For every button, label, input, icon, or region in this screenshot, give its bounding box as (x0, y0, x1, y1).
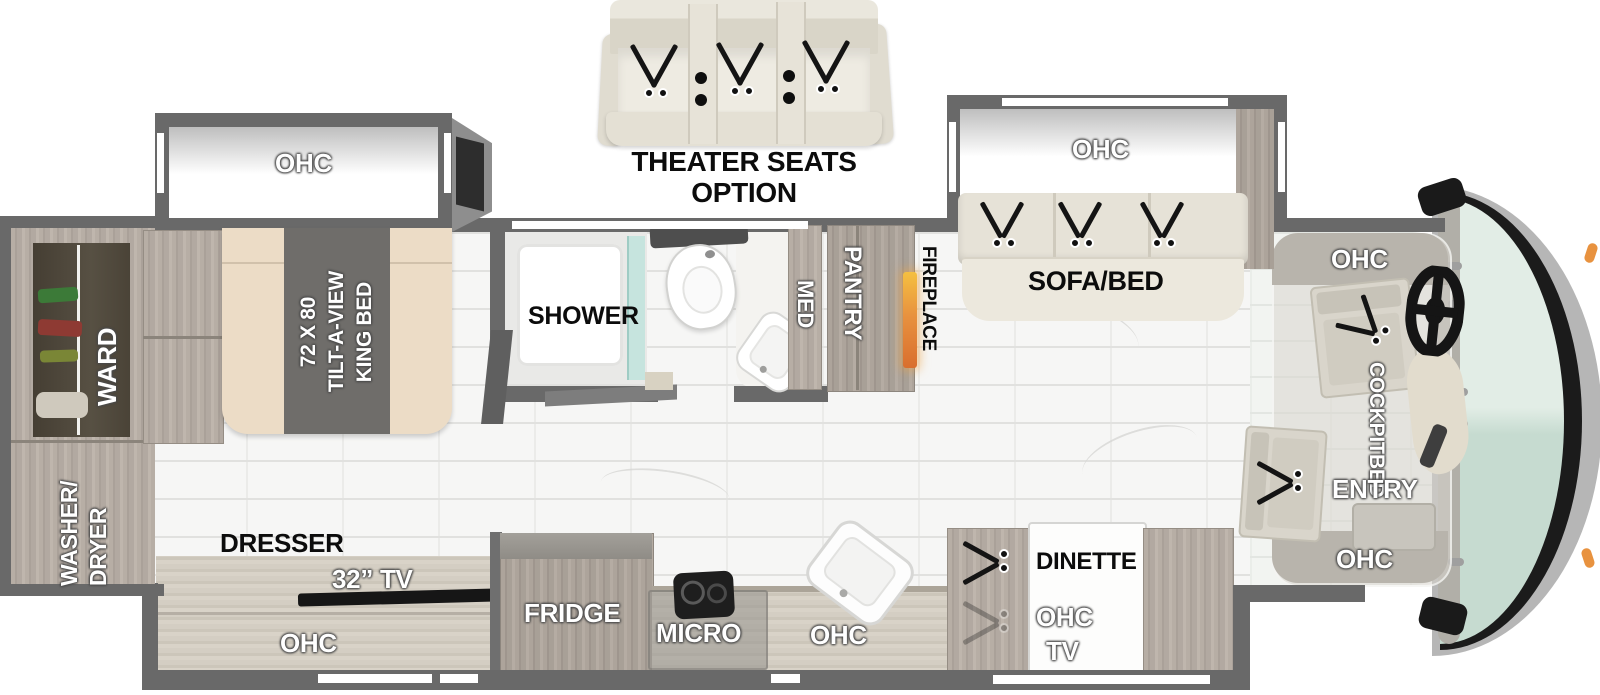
rv-floorplan: THEATER SEATS OPTION OHC 72 X 80 TILT-A-… (0, 0, 1600, 695)
micro-label: MICRO (656, 618, 741, 649)
dinette-bench-right (1143, 528, 1234, 674)
entry-label: ENTRY (1332, 474, 1418, 505)
king-bed-label-size: 72 X 80 (297, 297, 321, 367)
washer-label-line2: DRYER (85, 446, 112, 586)
king-bed-label-name: KING BED (353, 282, 377, 382)
bottom-window (771, 674, 800, 683)
bed-slide-ohc-label: OHC (169, 148, 438, 179)
fireplace-glow-icon (903, 272, 917, 368)
dinette-tv-label: TV (1046, 636, 1079, 667)
washer-label-line1: WASHER/ (56, 446, 83, 586)
med-label: MED (792, 280, 818, 358)
fridge-label: FRIDGE (524, 598, 620, 629)
bedroom-wardrobe-seam (143, 336, 222, 339)
seatbelt-icon (1255, 457, 1305, 509)
pantry-label: PANTRY (838, 246, 866, 396)
hanging-clothes-icon (40, 349, 78, 362)
sofa-slide-window-right (1278, 122, 1285, 192)
tv32-label: 32” TV (332, 564, 413, 595)
bottom-window (993, 675, 1210, 684)
top-window-theater-mark (512, 221, 808, 229)
hanging-clothes-icon (38, 287, 79, 304)
cockpit-ohc-top-label: OHC (1331, 244, 1388, 275)
seatbelt-icon-faded (961, 597, 1011, 649)
right-jog-horizontal (1250, 585, 1365, 602)
bed-slide-wall-top (155, 113, 452, 127)
dresser-label: DRESSER (220, 528, 344, 559)
seatbelt-icon (628, 42, 680, 100)
theater-option-label-line1: THEATER SEATS (592, 146, 896, 178)
ward-slide-wall-top (0, 216, 164, 228)
sofa-slide-window-top (1002, 98, 1228, 106)
dresser-ohc-label: OHC (280, 628, 337, 659)
seatbelt-icon (1054, 200, 1106, 250)
bed-slide-ohc (169, 127, 438, 232)
shower-label: SHOWER (528, 302, 639, 331)
seatbelt-icon (800, 38, 852, 96)
dinette-ohc-label: OHC (1036, 602, 1093, 633)
clearance-light-bottom-icon (1580, 547, 1596, 569)
sofa-bed-label: SOFA/BED (1028, 266, 1164, 297)
king-bed-label: 72 X 80 TILT-A-VIEW KING BED (286, 240, 388, 424)
bottom-window (440, 674, 478, 683)
king-bed-label-type: TILT-A-VIEW (325, 271, 349, 392)
shower-door-cap (645, 372, 673, 390)
fireplace-label: FIREPLACE (917, 246, 939, 376)
bedroom-tv-icon (456, 137, 484, 212)
left-wall-lower (142, 583, 158, 690)
cockpit-ohc-bottom-label: OHC (1336, 544, 1393, 575)
right-jog-vertical (1233, 585, 1250, 690)
dinette-label: DINETTE (1036, 548, 1137, 576)
clearance-light-top-icon (1583, 242, 1599, 264)
ward-label: WARD (92, 282, 123, 406)
seatbelt-icon (976, 200, 1028, 250)
seatbelt-icon (961, 537, 1011, 589)
theater-option-label-line2: OPTION (592, 177, 896, 209)
seatbelt-icon (714, 40, 766, 98)
bottom-window (318, 674, 432, 683)
kitchen-ohc-label: OHC (810, 620, 867, 651)
cooktop-icon (673, 570, 735, 619)
bed-slide-window-left (157, 133, 164, 193)
top-wall-right (1285, 218, 1445, 232)
washer-dryer-label: WASHER/ DRYER (48, 446, 120, 586)
shelf-linen (36, 392, 88, 418)
hanging-clothes-icon (38, 319, 83, 337)
ward-slide-wall-left (0, 216, 11, 596)
sofa-slide-window-left (949, 122, 956, 192)
cockpit-bed-label-line1: COCKPIT (1328, 362, 1388, 454)
steering-wheel-icon (1401, 263, 1468, 359)
ward-seam (11, 440, 155, 443)
seatbelt-icon (1136, 200, 1188, 250)
bed-slide-window-right (444, 133, 451, 193)
dresser-counter-divider (156, 612, 498, 615)
sofa-ohc-label: OHC (1072, 134, 1129, 165)
fridge-top (500, 533, 652, 559)
